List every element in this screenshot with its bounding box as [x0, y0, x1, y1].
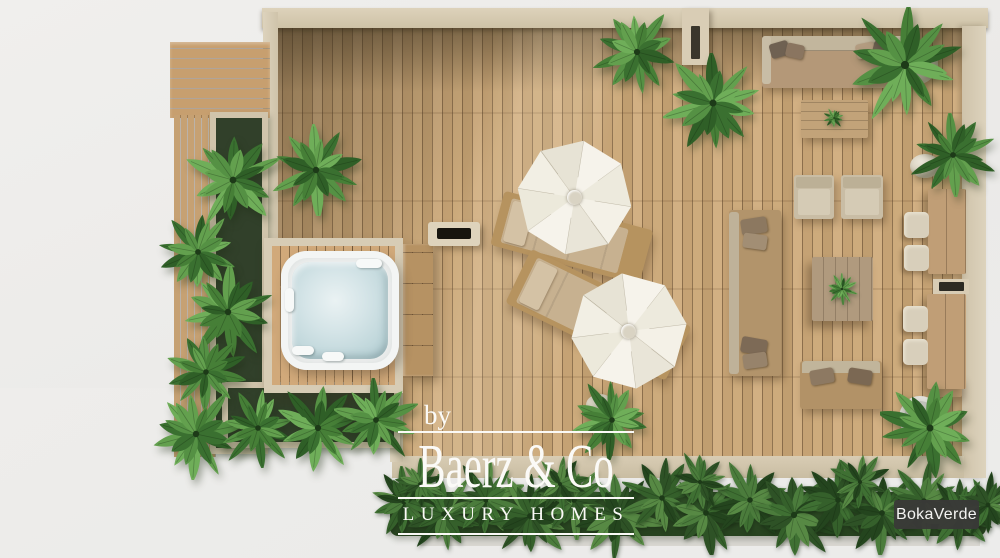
palm-plant [663, 53, 763, 153]
palm-plant [830, 452, 890, 512]
umbrella-finial [567, 190, 582, 205]
palm-plant [156, 210, 240, 294]
palm-plant [826, 273, 858, 305]
umbrella-finial [621, 324, 636, 339]
agency-logo: by Baerz & Co LUXURY HOMES [398, 400, 634, 540]
palm-plant [274, 384, 362, 472]
logo-by-label: by [424, 400, 451, 431]
palm-plant [670, 452, 730, 512]
palm-plant [710, 460, 790, 540]
palm-plant [824, 108, 844, 128]
palm-plant [798, 460, 878, 540]
palm-plant [150, 388, 242, 480]
logo-rule [398, 533, 634, 535]
palm-plant [218, 388, 298, 468]
palm-plant [166, 332, 246, 412]
logo-tagline: LUXURY HOMES [398, 504, 634, 526]
palm-plant [911, 113, 995, 197]
palm-plant [750, 471, 838, 558]
palm-plant [593, 8, 681, 96]
rooftop-terrace-floorplan: by Baerz & Co LUXURY HOMES BokaVerde [0, 0, 1000, 558]
palm-plant [185, 132, 281, 228]
palm-plant [182, 266, 274, 358]
palm-plant [847, 7, 963, 123]
logo-rule [398, 497, 634, 499]
logo-company-name: Baerz & Co [412, 436, 621, 498]
bokaverde-watermark: BokaVerde [894, 500, 979, 529]
palm-plant [664, 471, 748, 555]
palm-plant [270, 124, 362, 216]
palm-plant [880, 378, 980, 478]
palm-plant [622, 458, 702, 538]
